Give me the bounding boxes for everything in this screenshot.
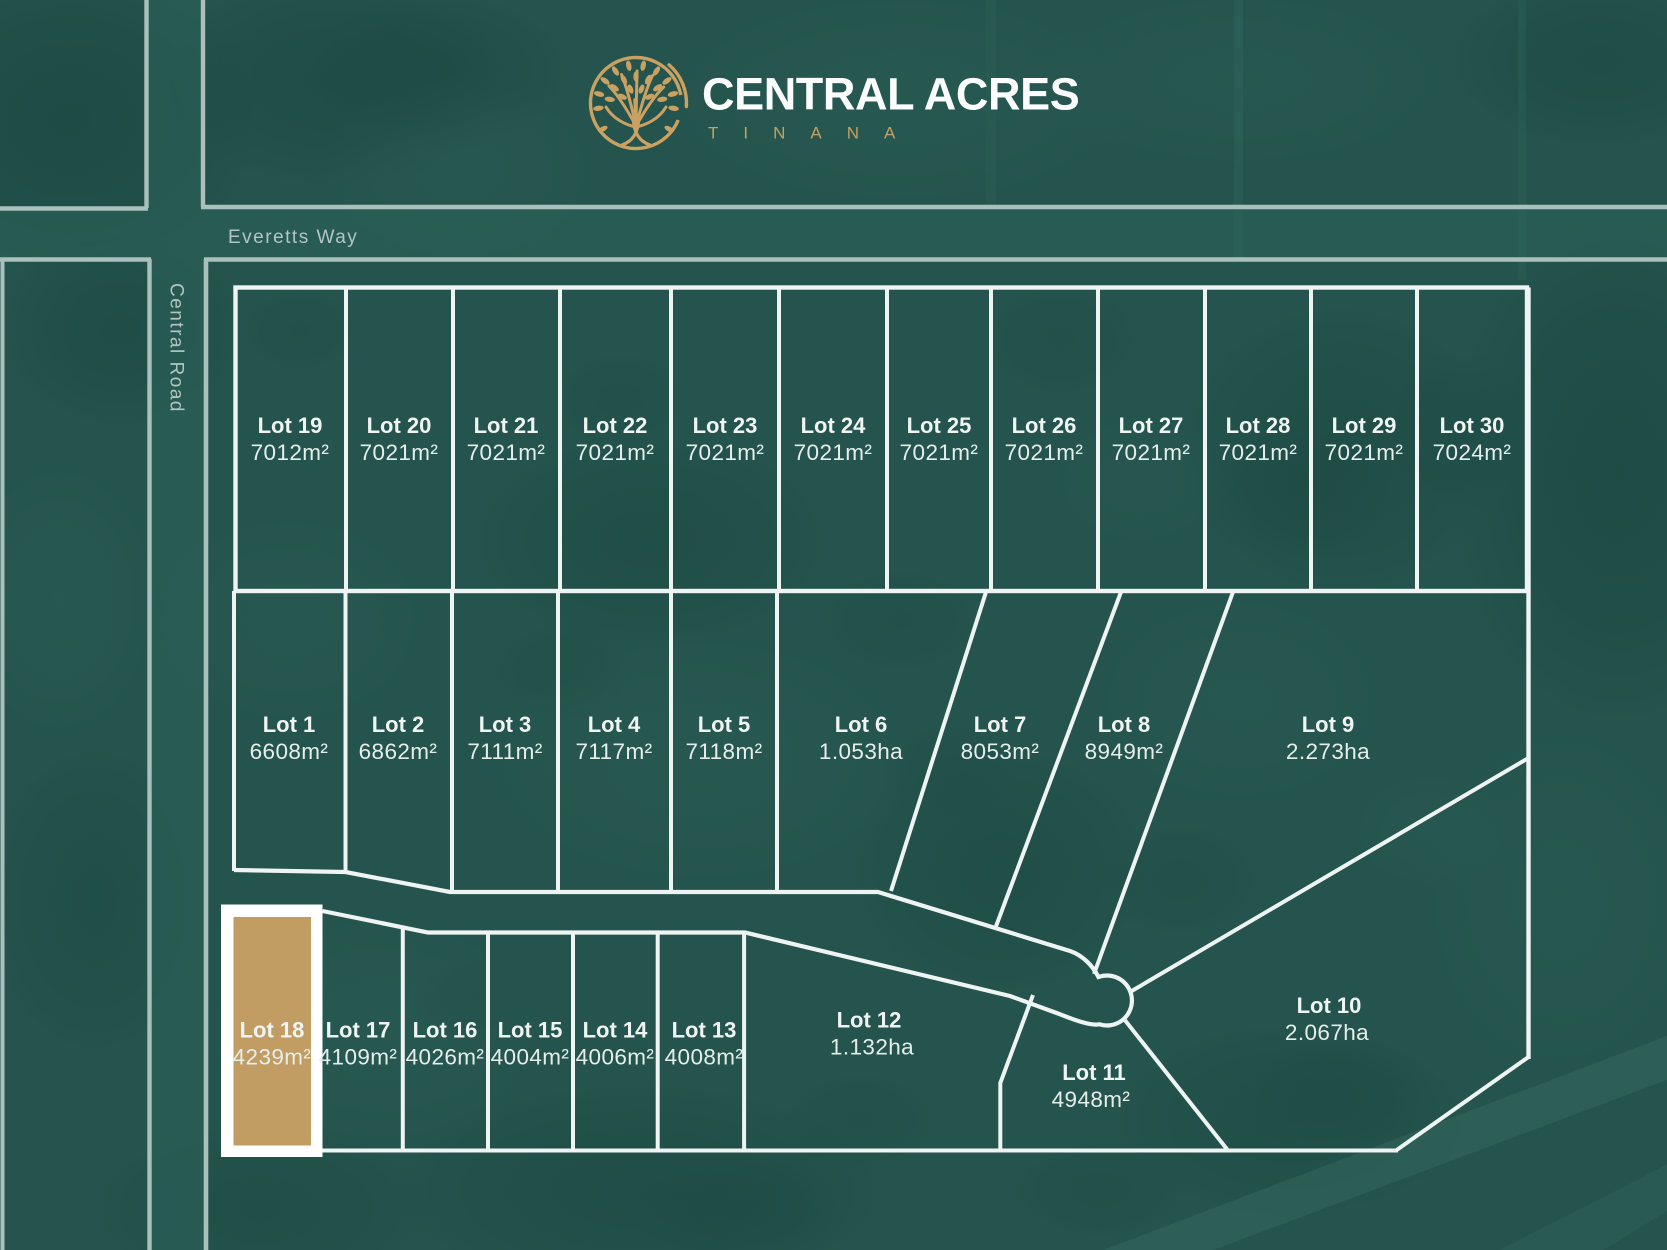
svg-text:Lot 30: Lot 30 <box>1440 413 1505 438</box>
svg-text:TINANA: TINANA <box>708 124 920 143</box>
svg-text:Lot 23: Lot 23 <box>693 413 758 438</box>
svg-text:4006m²: 4006m² <box>576 1045 655 1070</box>
svg-text:7021m²: 7021m² <box>467 440 546 465</box>
svg-text:4008m²: 4008m² <box>665 1045 744 1070</box>
svg-text:7021m²: 7021m² <box>900 440 979 465</box>
svg-text:8949m²: 8949m² <box>1085 739 1164 764</box>
svg-text:Lot 19: Lot 19 <box>258 413 323 438</box>
svg-text:Lot 12: Lot 12 <box>837 1008 902 1033</box>
svg-text:7118m²: 7118m² <box>685 739 762 764</box>
svg-text:Lot 13: Lot 13 <box>672 1018 737 1043</box>
svg-text:6862m²: 6862m² <box>359 739 438 764</box>
svg-text:4026m²: 4026m² <box>406 1045 485 1070</box>
svg-text:7021m²: 7021m² <box>1325 440 1404 465</box>
svg-text:1.053ha: 1.053ha <box>819 739 903 764</box>
svg-text:7021m²: 7021m² <box>1219 440 1298 465</box>
svg-text:Lot 5: Lot 5 <box>698 712 751 737</box>
svg-text:Lot 26: Lot 26 <box>1012 413 1077 438</box>
svg-text:Lot 24: Lot 24 <box>801 413 867 438</box>
svg-text:Central Road: Central Road <box>166 283 187 413</box>
svg-text:6608m²: 6608m² <box>250 739 329 764</box>
svg-text:Lot 3: Lot 3 <box>479 712 532 737</box>
svg-text:Lot 21: Lot 21 <box>474 413 539 438</box>
svg-text:7021m²: 7021m² <box>686 440 765 465</box>
svg-text:Lot 11: Lot 11 <box>1062 1060 1126 1085</box>
svg-text:8053m²: 8053m² <box>961 739 1040 764</box>
svg-text:7117m²: 7117m² <box>575 739 652 764</box>
svg-text:Lot 18: Lot 18 <box>240 1018 305 1043</box>
svg-text:Everetts Way: Everetts Way <box>228 227 358 248</box>
svg-text:Lot 27: Lot 27 <box>1119 413 1184 438</box>
svg-text:Lot 17: Lot 17 <box>326 1018 391 1043</box>
svg-text:2.273ha: 2.273ha <box>1286 739 1370 764</box>
svg-text:Lot 22: Lot 22 <box>583 413 648 438</box>
svg-text:4948m²: 4948m² <box>1052 1087 1131 1112</box>
svg-text:Lot 2: Lot 2 <box>372 712 425 737</box>
svg-text:2.067ha: 2.067ha <box>1285 1020 1369 1045</box>
svg-text:Lot 9: Lot 9 <box>1302 712 1355 737</box>
svg-text:7021m²: 7021m² <box>1005 440 1084 465</box>
svg-text:Lot 29: Lot 29 <box>1332 413 1397 438</box>
svg-text:7012m²: 7012m² <box>251 440 330 465</box>
svg-text:Lot 7: Lot 7 <box>974 712 1027 737</box>
svg-text:4109m²: 4109m² <box>319 1045 398 1070</box>
svg-text:7021m²: 7021m² <box>576 440 655 465</box>
svg-text:Lot 15: Lot 15 <box>498 1018 563 1043</box>
svg-text:4239m²: 4239m² <box>233 1045 312 1070</box>
svg-text:7024m²: 7024m² <box>1433 440 1512 465</box>
svg-text:Lot 20: Lot 20 <box>367 413 432 438</box>
svg-text:7021m²: 7021m² <box>794 440 873 465</box>
svg-text:Lot 4: Lot 4 <box>588 712 641 737</box>
svg-text:7111m²: 7111m² <box>467 739 542 764</box>
svg-text:Lot 8: Lot 8 <box>1098 712 1151 737</box>
svg-text:Lot 6: Lot 6 <box>835 712 888 737</box>
svg-text:Lot 28: Lot 28 <box>1226 413 1291 438</box>
svg-text:Lot 25: Lot 25 <box>907 413 972 438</box>
svg-text:Lot 10: Lot 10 <box>1297 993 1362 1018</box>
svg-text:Lot 14: Lot 14 <box>583 1018 649 1043</box>
svg-text:7021m²: 7021m² <box>360 440 439 465</box>
svg-text:Lot 1: Lot 1 <box>263 712 316 737</box>
svg-text:Lot 16: Lot 16 <box>413 1018 478 1043</box>
svg-text:1.132ha: 1.132ha <box>830 1035 914 1060</box>
svg-text:7021m²: 7021m² <box>1112 440 1191 465</box>
svg-text:CENTRAL ACRES: CENTRAL ACRES <box>702 69 1079 120</box>
svg-text:4004m²: 4004m² <box>491 1045 570 1070</box>
